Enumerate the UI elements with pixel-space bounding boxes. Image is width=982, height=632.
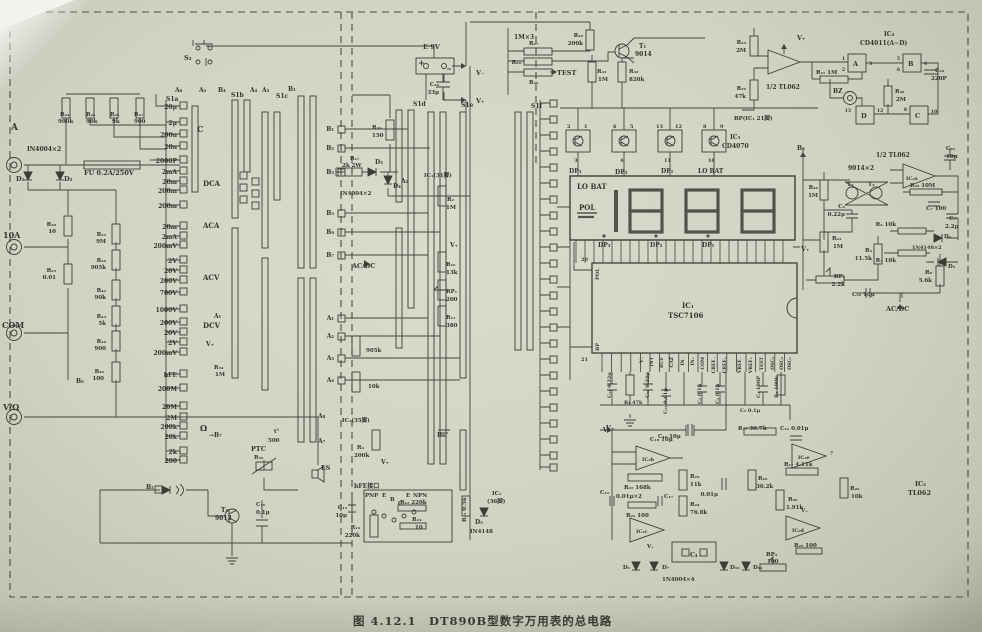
schematic-label: hFE — [164, 372, 178, 379]
schematic-label: 220k — [345, 533, 360, 539]
schematic-label: R₃₉ 10M — [910, 183, 935, 189]
schematic-label: 1M — [598, 77, 608, 83]
schematic-label: 1M — [833, 244, 843, 250]
schematic-label: R₃ — [357, 445, 365, 451]
schematic-label: 200 — [446, 297, 458, 303]
schematic-label: 20V — [164, 330, 177, 337]
schematic-label: 2μ — [168, 120, 177, 127]
schematic-label: V₋ — [475, 69, 484, 77]
diode-d1 — [24, 172, 32, 180]
schematic-label: POL — [579, 203, 595, 212]
schematic-label: B₃ — [326, 169, 334, 176]
schematic-label: IN4148 — [470, 529, 493, 535]
schematic-label: IN4004×2 — [27, 146, 61, 153]
schematic-label: OSC₂ — [779, 357, 785, 370]
schematic-label: R₂₈ — [512, 60, 522, 66]
wire-network — [24, 22, 958, 556]
schematic-label: R₁₈ — [758, 476, 768, 482]
schematic-label: 700V — [160, 290, 178, 297]
schematic-label: 10μ — [335, 513, 347, 519]
schematic-label: R₂₁ 100 — [626, 513, 649, 519]
schematic-label: V₊ — [800, 245, 809, 253]
schematic-label: R₁₇ 4.11k — [784, 462, 813, 468]
figure-caption: 图 4.12.1 DT890B型数字万用表的总电路 — [353, 613, 612, 629]
schematic-label: 2 — [842, 67, 845, 73]
schematic-label: C₂₁ — [946, 146, 956, 152]
schematic-label: D₆ — [623, 565, 631, 571]
schematic-label: 1.91k — [786, 505, 803, 511]
schematic-label: 0.22μ — [828, 212, 845, 218]
buzzer-b2 — [162, 484, 184, 496]
schematic-label: R₄₆ — [95, 369, 105, 375]
schematic-label: 220P — [931, 76, 947, 82]
schematic-label: A — [10, 123, 19, 133]
schematic-label: ACA — [202, 221, 220, 230]
schematic-label: T₁ — [639, 43, 646, 50]
schematic-label: 1/2 TL062 — [876, 152, 910, 159]
schematic-label: TEST — [759, 356, 765, 370]
schematic-label: A — [852, 60, 859, 68]
schematic-label: 20m — [162, 224, 177, 231]
schematic-label: 2.2μ — [945, 224, 959, 230]
schematic-label: B₆ — [76, 378, 84, 385]
schematic-label: C — [915, 112, 920, 120]
schematic-label: DCA — [203, 179, 221, 188]
schematic-label: R₂₈ — [47, 222, 57, 228]
schematic-label: IC₂c — [636, 529, 648, 535]
schematic-label: OSC₃ — [770, 357, 776, 370]
schematic-label: B — [908, 60, 914, 68]
schematic-label: 2mA — [162, 234, 178, 241]
schematic-label: D₄ — [393, 183, 401, 190]
schematic-label: 5 — [897, 56, 900, 62]
cap-c16b — [790, 436, 802, 440]
schematic-label: A₇ — [317, 438, 326, 445]
lcd-digit-8 — [742, 190, 774, 211]
schematic-label: R₂₇ — [134, 112, 144, 118]
schematic-label: V₊ — [796, 34, 805, 42]
schematic-label: 0.01 — [43, 275, 57, 281]
schematic-label: R₄₁ — [832, 236, 842, 242]
schematic-label: R₄₀ — [809, 185, 819, 191]
schematic-label: 90k — [95, 295, 107, 301]
schematic-label: AC/DC — [885, 305, 909, 313]
lcd-digit-8 — [686, 211, 718, 232]
schematic-label: 1M — [215, 372, 225, 378]
schematic-label: C₉ — [949, 216, 956, 222]
schematic-label: D₂ — [64, 175, 73, 183]
schematic-label: R₁₉ 30.7k — [738, 426, 767, 432]
schematic-label: 20 — [581, 257, 588, 263]
schematic-label: 900 — [134, 119, 146, 125]
schematic-label: 2M — [166, 415, 177, 422]
schematic-label: B₄ — [218, 87, 226, 94]
schematic-label: 11k — [690, 482, 702, 488]
schematic-label: 9M — [96, 239, 106, 245]
schematic-label: 200k — [568, 41, 583, 47]
lcd-digit-8 — [630, 211, 662, 232]
schematic-label: R₂₄ — [60, 112, 70, 118]
schematic-label: 13 — [656, 124, 663, 130]
schematic-label: 900 — [95, 346, 107, 352]
schematic-label: 5k — [98, 321, 106, 327]
schematic-label: A₆ — [174, 87, 183, 94]
schematic-label: V₊ — [449, 242, 458, 249]
schematic-label: IC₄ — [884, 31, 895, 38]
schematic-label: 1 — [842, 56, 845, 62]
schematic-label: R₃₆ — [737, 86, 747, 92]
schematic-label: RP₃ — [766, 552, 778, 558]
schematic-label: 5 — [630, 124, 634, 130]
schematic-label: C₁₈ 10μ — [650, 437, 673, 443]
schematic-label: R₂₉ — [47, 268, 57, 274]
lcd-digit-8 — [742, 211, 774, 232]
schematic-label: DP₂ — [650, 242, 663, 249]
schematic-label: C₇ 100 — [926, 206, 946, 212]
schematic-label: 8 — [904, 107, 907, 113]
schematic-label: IC₂a — [906, 176, 919, 182]
schematic-label: A₁ — [213, 313, 222, 320]
schematic-label: C — [197, 124, 203, 134]
schematic-label: 1/2 TL062 — [766, 84, 800, 91]
driver-box-1 — [566, 130, 590, 152]
schematic-label: ACV — [202, 273, 220, 282]
schematic-label: V₊ — [205, 341, 214, 348]
schematic-label: IN₋ — [680, 356, 686, 365]
schematic-label: FU 0.2A/250V — [84, 169, 135, 177]
schematic-label: A₃ — [261, 87, 270, 94]
schematic-label: CREF₊ — [722, 356, 728, 373]
schematic-label: IC₁(31脚) — [424, 171, 452, 179]
schematic-label: R₄₂ — [97, 288, 107, 294]
schematic-label: S1d — [413, 101, 427, 108]
schematic-label: 100 — [767, 559, 779, 565]
schematic-label: R₂₆ — [110, 112, 120, 118]
diode-d4 — [384, 176, 392, 184]
schematic-label: R₇ 10k — [876, 258, 897, 264]
schematic-label: R₂₅ — [86, 112, 96, 118]
schematic-label: 9k — [112, 119, 120, 125]
diode-d4r — [934, 234, 942, 242]
schematic-label: R₄₄ — [97, 339, 107, 345]
terminal-10a — [7, 240, 22, 255]
schematic-label: R₂ — [447, 197, 455, 203]
schematic-label: 47k — [735, 94, 747, 100]
schematic-label: R₂₃ — [690, 474, 700, 480]
schematic-label: RP₂ — [834, 274, 846, 280]
schematic-label: S1b — [231, 92, 244, 99]
schematic-label: 820k — [629, 77, 644, 83]
schematic-label: 0.01μ — [701, 492, 718, 498]
schematic-label: 200mV — [153, 350, 177, 357]
schematic-label: B — [390, 497, 395, 503]
schematic-label: 500 — [268, 438, 280, 444]
schematic-label: C₁₁ 0.22μ — [607, 372, 613, 398]
schematic-label: R₃₂ — [629, 69, 639, 75]
schematic-label: R₁₄ — [412, 517, 422, 523]
schematic-label: C₁ 0.1μ — [697, 383, 703, 404]
battery-9v — [416, 58, 454, 74]
schematic-label: R₂₄ — [690, 502, 700, 508]
schematic-label: R₁₂ 220k — [400, 500, 427, 506]
schematic-label: 10A — [3, 230, 21, 240]
schematic-label: 10 — [48, 229, 56, 235]
schematic-label: B₇ — [437, 432, 445, 439]
schematic-label: R₃₁ — [597, 69, 607, 75]
schematic-label: IC₂d — [792, 528, 805, 534]
schematic-label: 3 — [869, 61, 872, 67]
schematic-label: S₂ — [184, 54, 192, 62]
schematic-label: 1 — [584, 124, 587, 130]
schematic-label: R₅₄ — [214, 365, 224, 371]
schematic-label: 200M — [158, 386, 178, 393]
schematic-label: DP₂ — [615, 169, 628, 176]
schematic-label: IC₂e — [798, 455, 810, 461]
schematic-label: LO BAT — [698, 168, 724, 175]
schematic-label: B₅ — [326, 210, 334, 217]
schematic-label: 10 — [708, 158, 715, 164]
schematic-label: R₈ — [925, 270, 933, 276]
schematic-label: C₁₂ — [600, 490, 610, 496]
diode-d10 — [720, 562, 728, 570]
schematic-label: T₂ — [847, 182, 854, 188]
schematic-label: 1000V — [156, 307, 178, 314]
schematic-label: LO BAT — [577, 182, 607, 191]
schematic-label: B₁ — [288, 86, 296, 93]
schematic-label: DP₃ — [598, 242, 611, 249]
schematic-label: D₄ — [944, 234, 952, 240]
schematic-label: V₊ — [605, 424, 614, 432]
schematic-label: R₃₈ — [895, 89, 905, 95]
schematic-label: 1M — [446, 205, 456, 211]
schematic-label: PTC — [251, 445, 266, 453]
schematic-label: DP₃ — [569, 168, 582, 175]
schematic-label: IC₁ — [682, 301, 694, 310]
schematic-label: C₅ 0.1μ — [740, 408, 761, 414]
schematic-label: B₁ — [326, 126, 334, 133]
transistors-t2-t3 — [846, 187, 882, 199]
cap-c16 — [256, 520, 268, 526]
schematic-label: S1a — [166, 96, 179, 103]
schematic-label: 20V — [164, 268, 177, 275]
schematic-label: R₅₆ — [254, 455, 264, 461]
schematic-label: D₁₀ — [730, 565, 740, 571]
schematic-label: CD4011(A~D) — [860, 40, 907, 47]
schematic-label: RP₁ — [446, 289, 458, 295]
schematic-label: C₃ 100P — [756, 376, 762, 398]
schematic-label: IC₂ — [915, 480, 926, 488]
schematic-label: 9014×2 — [848, 165, 874, 172]
schematic-label: 13 — [845, 108, 851, 114]
schematic-label: 20n — [164, 144, 177, 151]
schematic-label: BZ — [833, 88, 843, 95]
scanned-schematic-page: AIN4004×2D₁D₂FU 0.2A/250V10ACOMV/ΩR₂₄900… — [0, 0, 982, 632]
schematic-label: T₄ — [221, 507, 228, 514]
schematic-label: S1e — [461, 102, 474, 109]
schematic-label: C₁₇ — [664, 494, 674, 500]
schematic-label: 200V — [160, 278, 178, 285]
schematic-label: 150 — [372, 133, 384, 139]
board-boundaries — [10, 12, 968, 597]
schematic-label: R₁₅ 0.5k — [462, 497, 468, 522]
schematic-label: R₄₃ — [97, 314, 107, 320]
schematic-label: C₂₄ — [935, 68, 945, 74]
driver-box-2 — [612, 130, 636, 152]
schematic-label: V₊ — [646, 544, 654, 550]
schematic-label: D₁ — [16, 175, 25, 183]
schematic-label: R₅ — [865, 248, 873, 254]
diode-d2 — [56, 172, 64, 180]
schematic-label: 90k — [86, 119, 98, 125]
schematic-label: 2M — [736, 48, 746, 54]
schematic-label: COM — [2, 320, 24, 330]
schematic-label: →B₇ — [209, 432, 222, 439]
schematic-label: R₃₇ 1M — [816, 70, 837, 76]
schematic-label: IC₁(35脚) — [342, 416, 370, 424]
schematic-label: INT — [649, 356, 655, 366]
schematic-label: C₂₂ 10μ — [852, 292, 875, 298]
schematic-label: C₂ 0.1μ — [715, 383, 721, 404]
schematic-label: 100 — [93, 376, 105, 382]
schematic-label: 900k — [58, 119, 73, 125]
schematic-labels: AIN4004×2D₁D₂FU 0.2A/250V10ACOMV/ΩR₂₄900… — [2, 31, 959, 583]
schematic-label: IC₂b — [642, 457, 655, 463]
schematic-label: 6 — [897, 67, 900, 73]
schematic-label: C₆ — [838, 204, 845, 210]
schematic-label: VREF₊ — [748, 356, 754, 374]
schematic-label: A₂ — [400, 178, 409, 185]
schematic-label: R₁₇ — [350, 156, 360, 162]
schematic-label: C₂₀ — [430, 82, 440, 88]
schematic-label: OSC₁ — [787, 357, 793, 370]
schematic-label: IN4004×2 — [340, 191, 372, 197]
schematic-label: COM — [700, 357, 706, 370]
schematic-label: DP₁ — [702, 242, 715, 249]
schematic-label: 9 — [720, 124, 724, 130]
schematic-label: D₁₁ — [753, 565, 763, 571]
schematic-label: 11.5k — [855, 256, 872, 262]
schematic-label: VREF₋ — [737, 356, 743, 374]
schematic-svg: AIN4004×2D₁D₂FU 0.2A/250V10ACOMV/ΩR₂₄900… — [0, 0, 982, 632]
schematic-label: 12 — [877, 108, 883, 114]
schematic-label: POL — [595, 268, 601, 280]
schematic-label: 2.2k — [832, 282, 846, 288]
schematic-label: 12 — [675, 124, 682, 130]
schematic-label: A₂ — [326, 333, 335, 340]
schematic-label: IC₁ — [492, 491, 502, 497]
schematic-label: C₁₃ 0.01μ — [663, 388, 669, 414]
schematic-label: V₊ — [380, 459, 389, 466]
schematic-label: AC/DC — [351, 262, 375, 270]
schematic-label: R₄ 100k — [774, 375, 780, 398]
schematic-label: B₇ — [326, 252, 334, 259]
schematic-label: B₂ — [146, 484, 154, 491]
schematic-label: R₂₂ 168k — [624, 485, 651, 491]
schematic-label: t° — [274, 429, 280, 435]
schematic-label: 76.8k — [690, 510, 707, 516]
schematic-label: 1N4148×2 — [912, 245, 942, 251]
schematic-label: 13k — [446, 270, 458, 276]
schematic-label: R₃₀ — [574, 33, 584, 39]
schematic-label: 10 — [931, 109, 937, 115]
schematic-label: 200 — [164, 458, 177, 465]
schematic-label: E 9V — [423, 43, 441, 51]
diode-d11 — [742, 562, 750, 570]
schematic-label: D₇ — [662, 565, 670, 571]
diode-d6 — [632, 562, 640, 570]
schematic-label: TEST — [557, 69, 576, 77]
schematic-label: TL062 — [908, 489, 931, 497]
schematic-label: C₁₆ 0.01μ — [780, 426, 809, 432]
schematic-label: 380 — [446, 323, 458, 329]
schematic-label: 10k — [368, 384, 380, 390]
schematic-label: 2mA — [162, 169, 178, 176]
driver-box-3 — [658, 130, 682, 152]
schematic-label: C₁₂ 0.22μ — [645, 372, 651, 398]
schematic-label: 20M — [162, 404, 177, 411]
schematic-label: DP₁ — [661, 168, 674, 175]
push-switch-s2 — [195, 40, 213, 64]
schematic-label: BP(IC₁ 21脚) — [734, 114, 773, 122]
schematic-label: 200n — [160, 132, 178, 139]
schematic-label: B₆ — [326, 229, 334, 236]
schematic-label: A₄ — [249, 87, 258, 94]
schematic-label: B₅ — [797, 145, 805, 152]
schematic-label: NPN — [413, 493, 427, 499]
schematic-label: 200k — [160, 424, 178, 431]
schematic-label: R₃₄ — [97, 258, 107, 264]
schematic-label: 0.01μ×2 — [616, 494, 642, 500]
schematic-label: 30.2k — [756, 484, 773, 490]
page-corner-curl — [0, 0, 75, 30]
schematic-label: T₃ — [868, 182, 875, 188]
schematic-label: V₋ — [639, 356, 645, 363]
schematic-label: B₂ — [326, 145, 334, 152]
schematic-label: D₅ — [475, 519, 483, 526]
schematic-label: 9014 — [635, 51, 652, 58]
schematic-label: 200k — [354, 453, 369, 459]
schematic-label: 2V — [168, 258, 177, 265]
schematic-label: IC₃ — [730, 134, 741, 141]
schematic-label: 2k — [169, 449, 178, 456]
schematic-label: Ω — [200, 423, 207, 433]
schematic-label: A₅ — [198, 87, 207, 94]
rotary-switch-wafers — [192, 96, 533, 490]
schematic-label: S1c — [276, 93, 289, 100]
schematic-label: 33μ — [427, 90, 439, 96]
schematic-label: CAZ — [669, 356, 675, 367]
schematic-label: 21 — [581, 357, 588, 363]
schematic-label: R₁₁ — [446, 315, 456, 321]
schematic-label: A₃ — [326, 355, 335, 362]
schematic-label: R₂₆ — [850, 486, 860, 492]
schematic-label: C₁₅ — [338, 505, 348, 511]
schematic-label: 1M — [808, 193, 818, 199]
schematic-label: hFE接口 — [354, 482, 379, 490]
diode-d3 — [368, 168, 376, 176]
schematic-label: R₂₇ — [529, 41, 539, 47]
schematic-label: 2000P — [156, 158, 178, 165]
diode-in4148 — [480, 508, 488, 516]
terminal-a — [7, 158, 22, 173]
schematic-label: 200mV — [153, 243, 177, 250]
schematic-label: 2V — [168, 340, 177, 347]
schematic-label: 200m — [158, 203, 178, 210]
schematic-label: 2M — [896, 97, 906, 103]
buzzer-bz — [844, 92, 857, 105]
schematic-label: V/Ω — [2, 402, 19, 412]
cap-c6 — [846, 214, 858, 218]
